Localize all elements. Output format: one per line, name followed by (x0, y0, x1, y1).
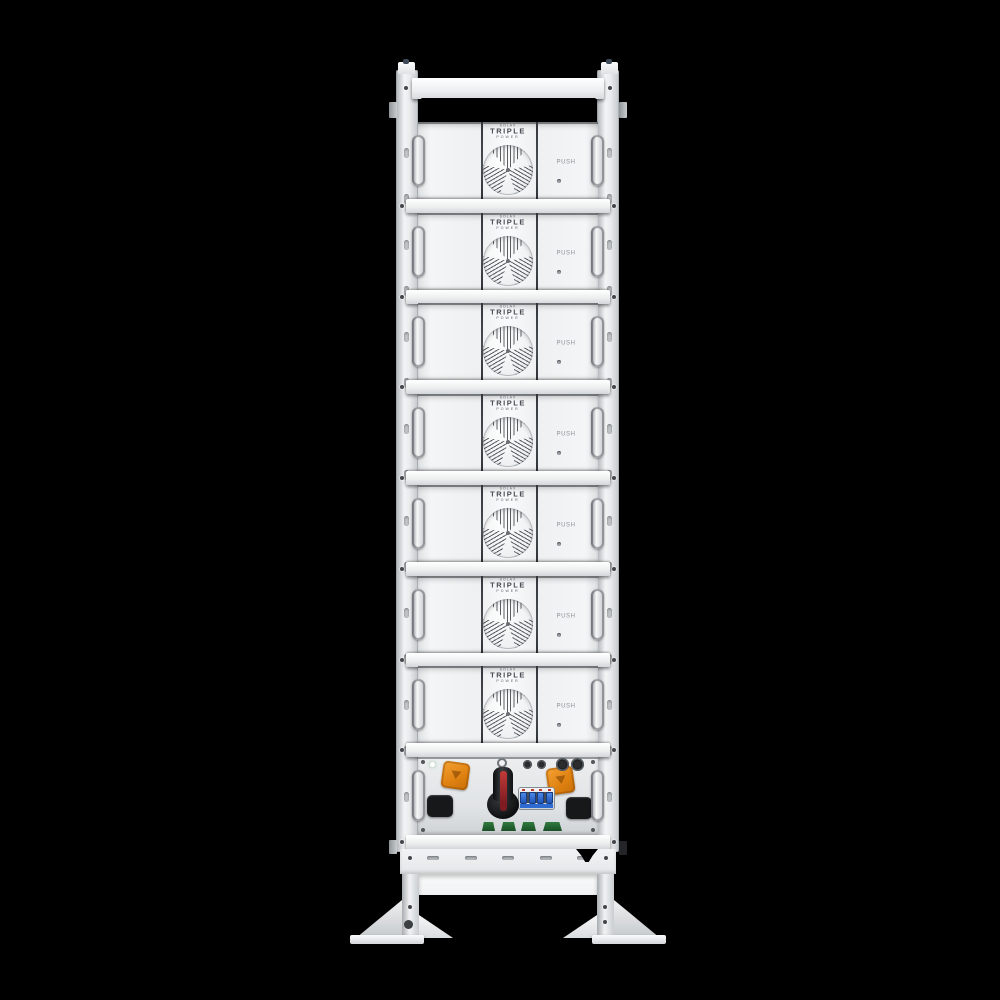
screw (603, 920, 607, 924)
push-button (557, 270, 561, 274)
panel-divider (536, 213, 538, 290)
module-handle-left (412, 770, 425, 821)
breaker-toggle (538, 793, 543, 803)
screw (604, 856, 608, 860)
leg-right (597, 874, 614, 938)
screw (612, 295, 616, 299)
rack-crossbar (406, 743, 610, 757)
brand-name: TRIPLE (481, 218, 535, 226)
round-cable-gland (571, 758, 584, 771)
status-led (429, 761, 436, 768)
module-handle-left (412, 226, 425, 277)
screw (421, 760, 425, 764)
fan-hub (506, 531, 510, 535)
panel-divider (536, 122, 538, 199)
vent-slot (427, 856, 439, 860)
fan-hub (506, 168, 510, 172)
breaker-indicator (531, 789, 534, 791)
brand-logo: SOLAX TRIPLE POWER (481, 668, 535, 683)
screw (408, 905, 412, 909)
fan-grille-icon (483, 417, 533, 467)
screw (612, 748, 616, 752)
screw (400, 385, 404, 389)
battery-module: SOLAX TRIPLE POWER PUSH (418, 666, 598, 757)
screw (591, 828, 595, 832)
module-handle-right (591, 226, 604, 277)
panel-divider (536, 666, 538, 743)
push-label: PUSH (555, 521, 577, 528)
fan-grille-icon (483, 689, 533, 739)
fan-grille-icon (483, 145, 533, 195)
brand-sub: POWER (481, 136, 535, 140)
brand-logo: SOLAX TRIPLE POWER (481, 215, 535, 230)
breaker-indicator (548, 789, 551, 791)
green-comm-port (501, 822, 516, 831)
module-handle-left (412, 316, 425, 367)
module-front-panel: SOLAX TRIPLE POWER PUSH (418, 666, 598, 743)
breaker-indicator (539, 789, 542, 791)
push-label: PUSH (555, 612, 577, 619)
screw (400, 476, 404, 480)
rack-crossbar (406, 471, 610, 485)
screw (400, 658, 404, 662)
panel-divider (536, 576, 538, 653)
battery-module: SOLAX TRIPLE POWER PUSH (418, 303, 598, 394)
module-handle-right (591, 498, 604, 549)
module-handle-left (412, 679, 425, 730)
green-comm-port (543, 822, 562, 831)
rack-crossbar (406, 835, 610, 849)
panel-divider (536, 303, 538, 380)
push-button (557, 451, 561, 455)
brand-logo: SOLAX TRIPLE POWER (481, 487, 535, 502)
brand-name: TRIPLE (481, 672, 535, 680)
screw (612, 204, 616, 208)
module-front-panel: SOLAX TRIPLE POWER PUSH (418, 394, 598, 471)
screw (400, 840, 404, 844)
brand-name: TRIPLE (481, 490, 535, 498)
breaker-toggle (530, 793, 535, 803)
screw (400, 748, 404, 752)
brand-sub: POWER (481, 226, 535, 230)
vent-slot (502, 856, 514, 860)
panel-divider (536, 485, 538, 562)
orange-connector-left (440, 760, 470, 790)
fan-grille-icon (483, 236, 533, 286)
module-front-panel: SOLAX TRIPLE POWER PUSH (418, 485, 598, 562)
brand-name: TRIPLE (481, 128, 535, 136)
brand-name: TRIPLE (481, 581, 535, 589)
brand-sub: POWER (481, 589, 535, 593)
screw (400, 204, 404, 208)
brand-sub: POWER (481, 680, 535, 684)
battery-module: SOLAX TRIPLE POWER PUSH (418, 576, 598, 667)
black-port-right (566, 797, 592, 819)
push-label: PUSH (555, 703, 577, 710)
brand-logo: SOLAX TRIPLE POWER (481, 396, 535, 411)
module-handle-right (591, 589, 604, 640)
battery-module: SOLAX TRIPLE POWER PUSH (418, 485, 598, 576)
screw (408, 856, 412, 860)
push-button (557, 633, 561, 637)
push-button (557, 360, 561, 364)
rack-crossbar (406, 653, 610, 667)
fan-hub (506, 259, 510, 263)
push-label: PUSH (555, 431, 577, 438)
fan-grille-icon (483, 508, 533, 558)
green-comm-port (482, 822, 495, 831)
push-label: PUSH (555, 249, 577, 256)
module-handle-left (412, 498, 425, 549)
module-handle-right (591, 316, 604, 367)
recessed-panel (419, 874, 597, 895)
fan-grille-icon (483, 599, 533, 649)
screw (612, 658, 616, 662)
module-handle-left (412, 135, 425, 186)
base-plate-left (350, 935, 424, 944)
brand-sub: POWER (481, 498, 535, 502)
vent-slot (465, 856, 477, 860)
push-label: PUSH (555, 340, 577, 347)
fan-grille-icon (483, 326, 533, 376)
breaker-toggle (547, 793, 552, 803)
module-front-panel: SOLAX TRIPLE POWER PUSH (418, 213, 598, 290)
module-front-panel: SOLAX TRIPLE POWER PUSH (418, 303, 598, 380)
battery-module: SOLAX TRIPLE POWER PUSH (418, 122, 598, 213)
screw (612, 476, 616, 480)
breaker-band (520, 804, 553, 808)
black-port-left (427, 795, 453, 817)
screw (421, 828, 425, 832)
module-handle-left (412, 407, 425, 458)
module-handle-left (412, 589, 425, 640)
green-comm-port (521, 822, 536, 831)
brand-logo: SOLAX TRIPLE POWER (481, 124, 535, 139)
brand-name: TRIPLE (481, 400, 535, 408)
push-label: PUSH (555, 159, 577, 166)
rack-crossbar (406, 199, 610, 213)
product-photo-stage: SOLAX TRIPLE POWER PUSH SOLAX TRIPLE (0, 0, 1000, 1000)
round-cable-gland (537, 760, 546, 769)
base-plate-right (592, 935, 666, 944)
rack-crossbar (406, 290, 610, 304)
module-front-panel: SOLAX TRIPLE POWER PUSH (418, 576, 598, 653)
breaker-indicator (522, 789, 525, 791)
module-handle-right (591, 770, 604, 821)
screw (591, 760, 595, 764)
screw (612, 567, 616, 571)
switch-red-stripe (500, 771, 507, 811)
fan-hub (506, 622, 510, 626)
battery-module: SOLAX TRIPLE POWER PUSH (418, 213, 598, 304)
circuit-breaker (519, 788, 554, 809)
rotary-disconnect-switch (487, 767, 519, 819)
screw (612, 840, 616, 844)
screw (400, 567, 404, 571)
module-handle-right (591, 407, 604, 458)
screw (612, 385, 616, 389)
module-front-panel: SOLAX TRIPLE POWER PUSH (418, 122, 598, 199)
rack-crossbar (406, 380, 610, 394)
screw (400, 295, 404, 299)
push-button (557, 542, 561, 546)
push-button (557, 723, 561, 727)
breaker-toggle (521, 793, 526, 803)
round-cable-gland (556, 758, 569, 771)
module-handle-right (591, 135, 604, 186)
panel-divider (536, 394, 538, 471)
rack-crossbar (406, 562, 610, 576)
brand-sub: POWER (481, 317, 535, 321)
screw (603, 905, 607, 909)
push-button (557, 179, 561, 183)
brand-logo: SOLAX TRIPLE POWER (481, 578, 535, 593)
battery-module: SOLAX TRIPLE POWER PUSH (418, 394, 598, 485)
module-handle-right (591, 679, 604, 730)
brand-sub: POWER (481, 408, 535, 412)
vent-slot (540, 856, 552, 860)
round-cable-gland (523, 760, 532, 769)
foot-hole (404, 920, 413, 929)
brand-logo: SOLAX TRIPLE POWER (481, 305, 535, 320)
